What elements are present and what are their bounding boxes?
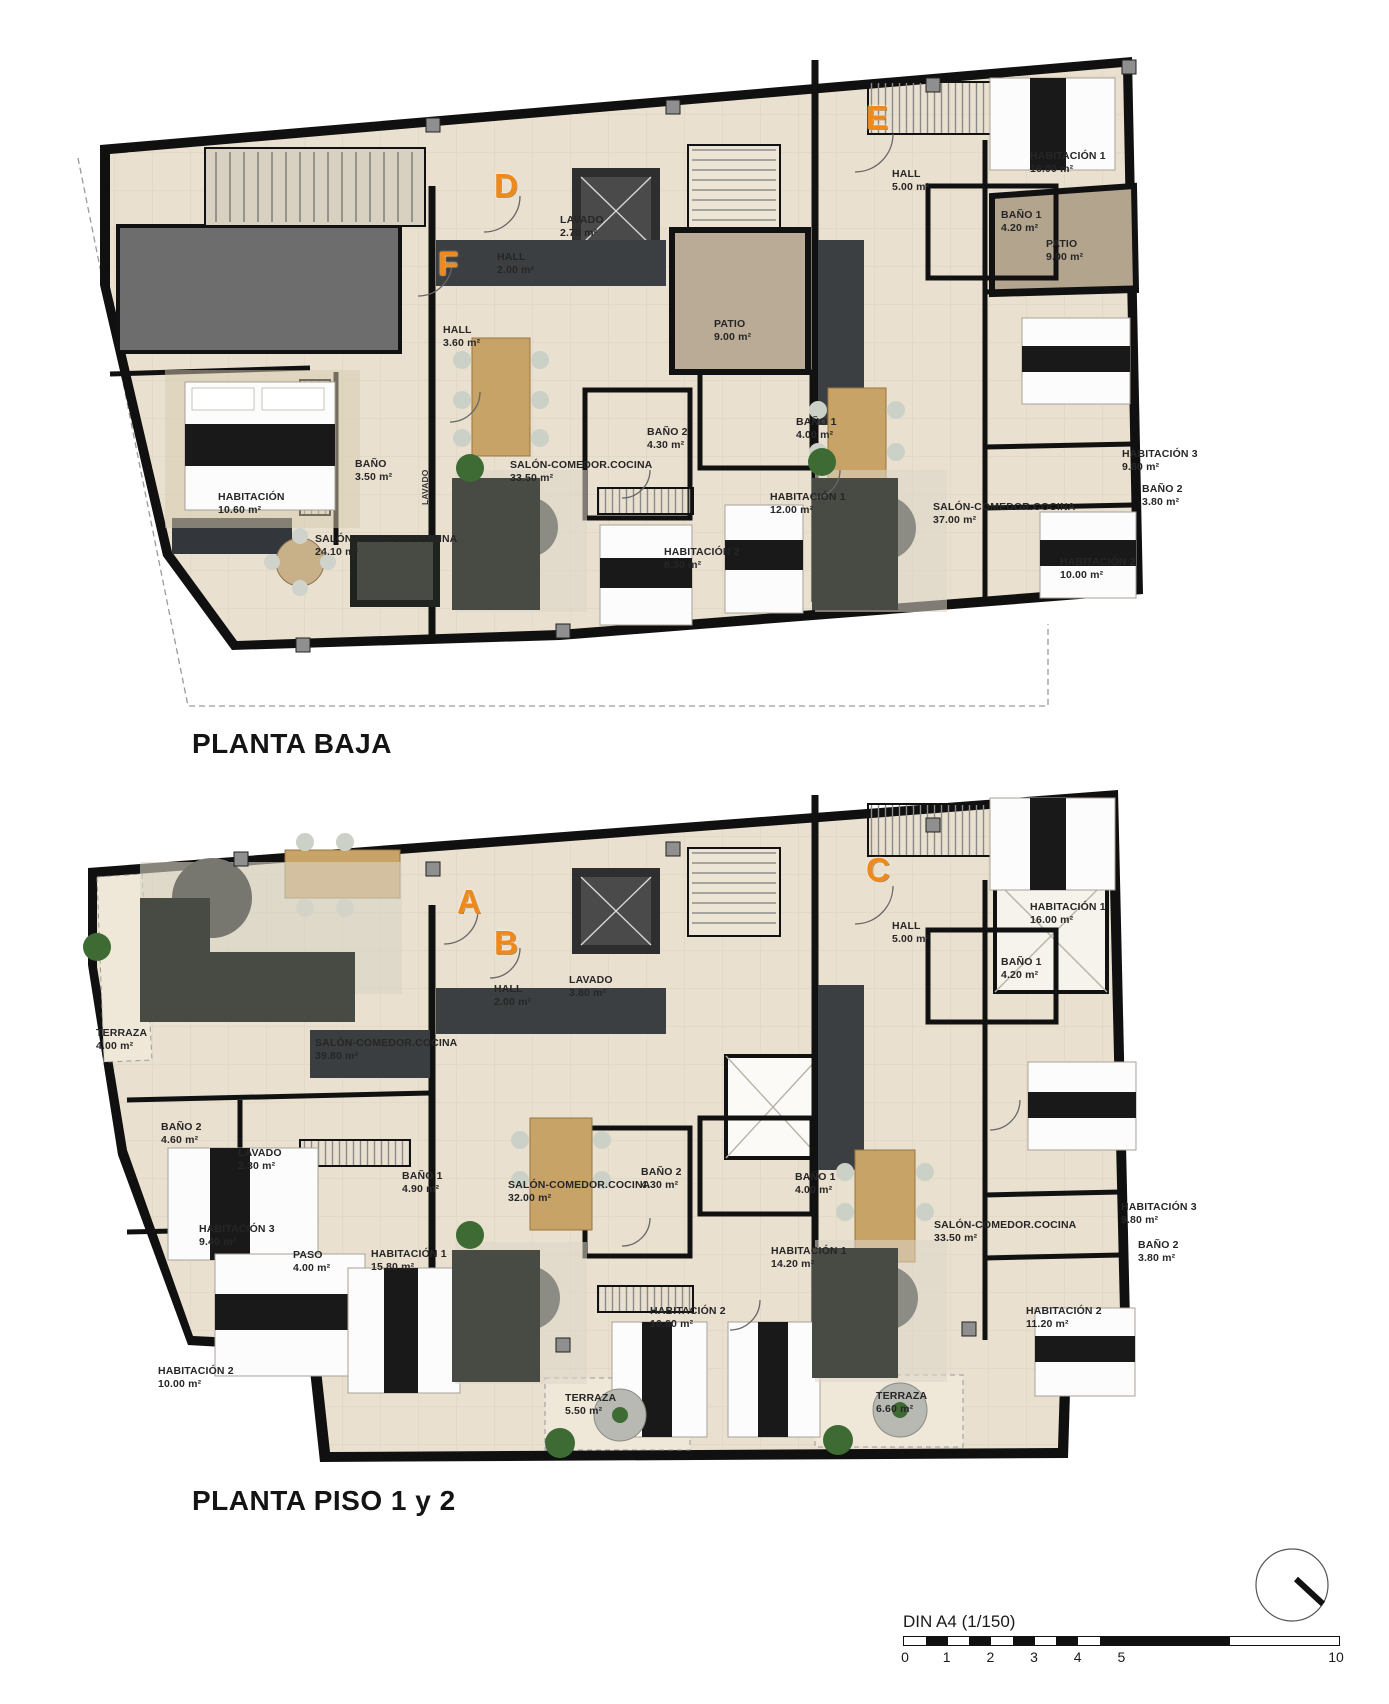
bed: [728, 1322, 820, 1437]
plan-title-planta-baja: PLANTA BAJA: [192, 728, 392, 760]
scale-label: DIN A4 (1/150): [903, 1612, 1340, 1632]
room-label: BAÑO3.50 m²: [355, 458, 392, 484]
scale-bar-segments: [903, 1636, 1340, 1646]
kitchen-counter: [436, 988, 666, 1034]
room-label: PATIO9.00 m²: [714, 318, 751, 344]
room-label: HABITACIÓN 39.80 m²: [1122, 448, 1198, 474]
room-label: HABITACIÓN 115.80 m²: [371, 1248, 447, 1274]
plant: [545, 1428, 575, 1458]
room-label: BAÑO 14.90 m²: [402, 1170, 443, 1196]
room-label: HABITACIÓN 211.20 m²: [1026, 1305, 1102, 1331]
dining-table: [453, 338, 549, 456]
plant: [456, 454, 484, 482]
plant: [808, 448, 836, 476]
room-label: PASO4.00 m²: [293, 1249, 330, 1275]
sofa: [452, 470, 587, 612]
scale-bar: DIN A4 (1/150) 0 1 2 3 4 5 10: [903, 1612, 1340, 1665]
plant: [83, 933, 111, 961]
room-label: SALÓN-COMEDOR.COCINA24.10 m²: [315, 533, 457, 559]
north-arrow-icon: [1256, 1549, 1328, 1621]
room-label: HALL2.00 m²: [497, 251, 534, 277]
room-label: HABITACIÓN 210.60 m²: [650, 1305, 726, 1331]
room-label: HABITACIÓN 28.30 m²: [664, 546, 740, 572]
plan-title-planta-piso: PLANTA PISO 1 y 2: [192, 1485, 456, 1517]
room-label: HALL2.00 m²: [494, 983, 531, 1009]
garage-ramp: [118, 226, 400, 352]
room-label: TERRAZA5.50 m²: [565, 1392, 616, 1418]
room-label: BAÑO 24.30 m²: [647, 426, 688, 452]
room-label: LAVADO: [420, 469, 431, 505]
unit-marker-b: B: [494, 924, 518, 962]
unit-marker-a: A: [457, 883, 481, 921]
room-label: BAÑO 24.30 m²: [641, 1166, 682, 1192]
room-label: HALL5.00 m²: [892, 920, 929, 946]
unit-marker-d: D: [494, 167, 518, 205]
room-label: BAÑO 14.20 m²: [1001, 956, 1042, 982]
bed: [1022, 318, 1130, 404]
room-label: HABITACIÓN 116.00 m²: [1030, 150, 1106, 176]
room-label: HABITACIÓN10.60 m²: [218, 491, 285, 517]
plant: [823, 1425, 853, 1455]
bed: [348, 1268, 460, 1393]
room-label: HABITACIÓN 210.00 m²: [1060, 556, 1136, 582]
plant: [456, 1221, 484, 1249]
unit-marker-f: F: [438, 245, 458, 283]
room-label: PATIO9.00 m²: [1046, 238, 1083, 264]
room-label: BAÑO 23.80 m²: [1138, 1239, 1179, 1265]
light-well: [726, 1056, 820, 1158]
room-label: HABITACIÓN 210.00 m²: [158, 1365, 234, 1391]
bed: [1028, 1062, 1136, 1150]
room-label: LAVADO2.30 m²: [238, 1147, 282, 1173]
floor-plan-drawing: [0, 0, 1389, 1704]
room-label: SALÓN-COMEDOR.COCINA33.50 m²: [934, 1219, 1076, 1245]
planta-baja-plan: [78, 57, 1143, 706]
floor-plan-sheet: PLANTA BAJA PLANTA PISO 1 y 2 F D E A B …: [0, 0, 1389, 1704]
bed: [990, 798, 1115, 890]
room-label: HABITACIÓN 39.80 m²: [1121, 1201, 1197, 1227]
unit-marker-e: E: [866, 99, 888, 137]
unit-marker-c: C: [866, 851, 890, 889]
room-label: HABITACIÓN 114.20 m²: [771, 1245, 847, 1271]
room-label: BAÑO 14.00 m²: [795, 1171, 836, 1197]
planta-piso-plan: [83, 790, 1136, 1462]
room-label: HALL3.60 m²: [443, 324, 480, 350]
wardrobe: [598, 488, 693, 514]
bed: [215, 1254, 365, 1376]
room-label: SALÓN-COMEDOR.COCINA39.80 m²: [315, 1037, 457, 1063]
scale-ticks: 0 1 2 3 4 5 10: [903, 1649, 1340, 1665]
patio-center: [672, 230, 808, 372]
room-label: BAÑO 23.80 m²: [1142, 483, 1183, 509]
kitchen-counter: [436, 240, 666, 286]
kitchen-counter: [818, 985, 864, 1170]
room-label: TERRAZA6.60 m²: [876, 1390, 927, 1416]
room-label: LAVADO3.80 m²: [569, 974, 613, 1000]
room-label: SALÓN-COMEDOR.COCINA32.00 m²: [508, 1179, 650, 1205]
room-label: LAVADO2.70 m²: [560, 214, 604, 240]
room-label: SALÓN-COMEDOR.COCINA33.50 m²: [510, 459, 652, 485]
room-label: HALL5.00 m²: [892, 168, 929, 194]
room-label: BAÑO 24.60 m²: [161, 1121, 202, 1147]
room-label: BAÑO 14.00 m²: [796, 416, 837, 442]
room-label: TERRAZA4.00 m²: [96, 1027, 147, 1053]
elevator: [572, 868, 660, 954]
room-label: HABITACIÓN 116.00 m²: [1030, 901, 1106, 927]
room-label: BAÑO 14.20 m²: [1001, 209, 1042, 235]
bed: [600, 525, 692, 625]
stairs-top-left: [205, 148, 425, 226]
room-label: SALÓN-COMEDOR.COCINA37.00 m²: [933, 501, 1075, 527]
room-label: HABITACIÓN 112.00 m²: [770, 491, 846, 517]
sofa: [452, 1242, 587, 1384]
room-label: HABITACIÓN 39.40 m²: [199, 1223, 275, 1249]
